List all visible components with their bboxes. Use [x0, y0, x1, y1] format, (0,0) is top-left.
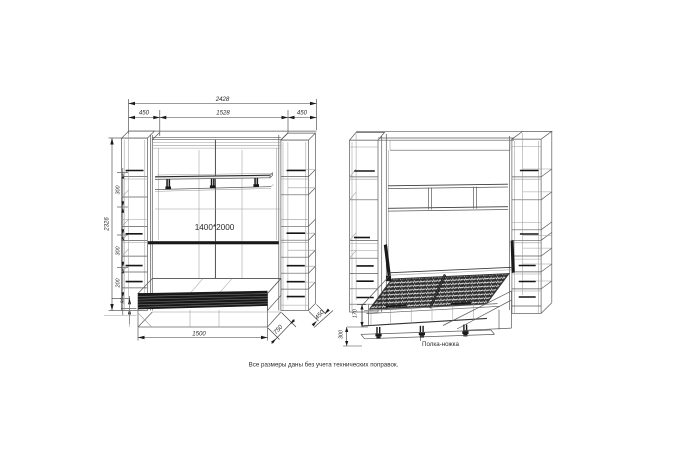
- svg-text:300: 300: [116, 186, 122, 195]
- svg-text:450: 450: [297, 110, 308, 117]
- svg-text:Все размеры даны без учета тех: Все размеры даны без учета технических п…: [249, 362, 399, 369]
- svg-text:450: 450: [139, 110, 150, 117]
- svg-text:200: 200: [116, 279, 122, 289]
- svg-text:300: 300: [116, 247, 122, 256]
- svg-text:2326: 2326: [104, 217, 111, 232]
- svg-text:Полка-ножка: Полка-ножка: [422, 341, 459, 348]
- svg-text:1500: 1500: [192, 331, 206, 338]
- svg-text:2428: 2428: [215, 96, 230, 103]
- svg-text:170: 170: [352, 309, 358, 318]
- svg-text:1400*2000: 1400*2000: [195, 223, 235, 232]
- svg-text:300: 300: [338, 330, 344, 339]
- svg-text:1528: 1528: [216, 110, 230, 117]
- svg-text:80: 80: [120, 298, 126, 304]
